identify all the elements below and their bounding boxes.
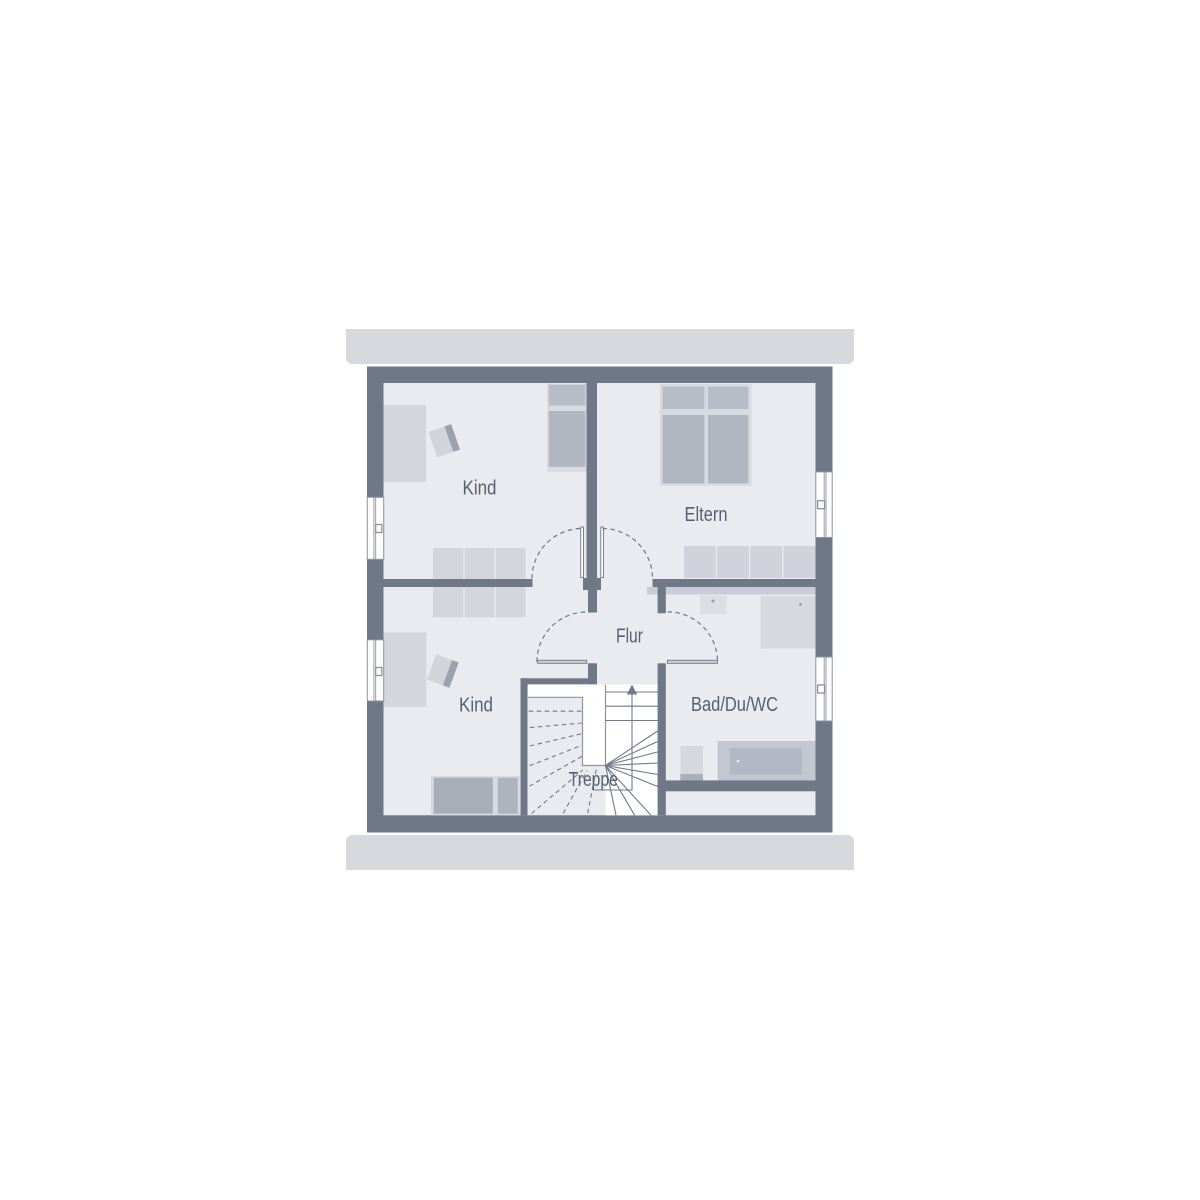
- svg-text:Treppe: Treppe: [569, 769, 618, 791]
- svg-text:Kind: Kind: [459, 695, 493, 717]
- svg-text:Flur: Flur: [616, 626, 643, 648]
- svg-text:Eltern: Eltern: [685, 504, 728, 526]
- svg-text:Kind: Kind: [463, 478, 497, 500]
- svg-text:Bad/Du/WC: Bad/Du/WC: [691, 694, 778, 716]
